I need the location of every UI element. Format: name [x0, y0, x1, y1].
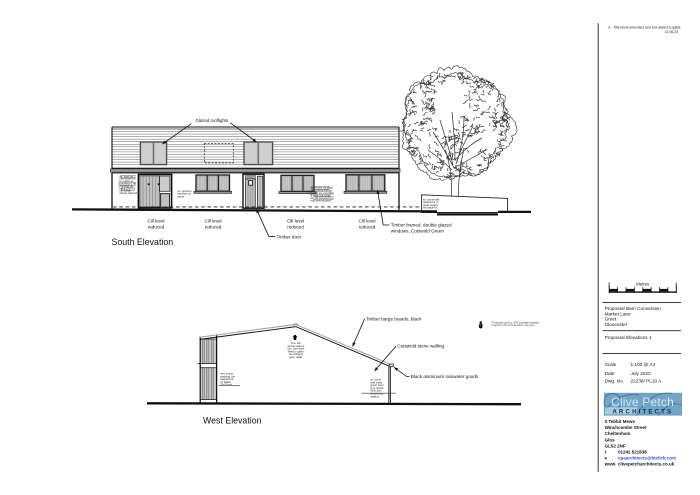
svg-text:Dwg. No.: Dwg. No. — [605, 379, 624, 384]
svg-text:as required: as required — [423, 206, 437, 210]
svg-text:1:100 @ A3: 1:100 @ A3 — [631, 362, 656, 367]
svg-text:Scale: Scale — [605, 362, 617, 367]
svg-text:Timber framed, double glazed: Timber framed, double glazed — [391, 223, 452, 228]
svg-text:Timber barge boards, black: Timber barge boards, black — [366, 316, 422, 321]
svg-text:A - Title block amended, text: A - Title block amended, text box added … — [608, 25, 680, 29]
svg-text:21.06.23: 21.06.23 — [665, 30, 678, 34]
svg-text:clivepetcharchitects.co.uk: clivepetcharchitects.co.uk — [618, 462, 675, 467]
svg-text:Glos: Glos — [605, 437, 615, 442]
svg-text:spec. detail: spec. detail — [289, 355, 303, 359]
svg-text:to approx 4.5m on N elevation,: to approx 4.5m on N elevation, see spec. — [492, 324, 536, 327]
svg-text:ARCHITECTS: ARCHITECTS — [612, 408, 673, 415]
svg-text:25x50 swt: 25x50 swt — [220, 383, 232, 387]
svg-text:West Elevation: West Elevation — [203, 416, 262, 426]
svg-text:South Elevation: South Elevation — [112, 237, 174, 247]
svg-text:reduced: reduced — [148, 224, 165, 229]
svg-text:reduced: reduced — [287, 224, 304, 229]
svg-text:3 Tebbit Mews: 3 Tebbit Mews — [605, 419, 636, 424]
svg-text:reduced: reduced — [205, 224, 222, 229]
svg-text:stone: stone — [178, 194, 185, 198]
svg-text:Proposed Elevations 1: Proposed Elevations 1 — [605, 335, 652, 340]
svg-text:Greet: Greet — [605, 317, 617, 322]
svg-text:01242 521638: 01242 521638 — [618, 450, 647, 455]
svg-text:shown dashed: shown dashed — [120, 191, 138, 195]
svg-text:Glazed rooflights: Glazed rooflights — [195, 118, 229, 123]
svg-text:windows, Cotswold Green: windows, Cotswold Green — [391, 228, 445, 233]
svg-text:Timber door: Timber door — [277, 235, 302, 240]
svg-text:www.: www. — [604, 462, 617, 467]
svg-text:July 2022: July 2022 — [631, 371, 651, 376]
svg-text:Date: Date — [605, 371, 615, 376]
svg-text:Cotswold stone walling: Cotswold stone walling — [397, 344, 444, 349]
svg-text:Winchcombe Street: Winchcombe Street — [605, 425, 647, 430]
svg-text:cpaarchitects@btclick.com: cpaarchitects@btclick.com — [618, 456, 676, 461]
svg-text:Black aluminium rainwater good: Black aluminium rainwater goods — [411, 374, 479, 379]
svg-text:Cheltenham: Cheltenham — [605, 431, 631, 436]
svg-text:Gloucester: Gloucester — [605, 322, 628, 327]
svg-text:Cill level: Cill level — [204, 219, 221, 224]
svg-text:suit new window: suit new window — [311, 199, 332, 203]
svg-text:Cill level: Cill level — [147, 219, 164, 224]
svg-text:Metres: Metres — [636, 282, 649, 287]
svg-text:Market Lane: Market Lane — [605, 311, 631, 316]
svg-text:GL52 2NF: GL52 2NF — [605, 443, 626, 448]
svg-text:Proposed Barn Conversion: Proposed Barn Conversion — [605, 306, 662, 311]
svg-text:reduced: reduced — [359, 224, 376, 229]
svg-text:Clive Petch: Clive Petch — [611, 395, 674, 409]
svg-text:Cill level: Cill level — [358, 219, 375, 224]
svg-text:walling: walling — [371, 394, 379, 398]
svg-text:Cill level: Cill level — [287, 219, 304, 224]
svg-text:22238/ PL10 A: 22238/ PL10 A — [631, 379, 663, 384]
